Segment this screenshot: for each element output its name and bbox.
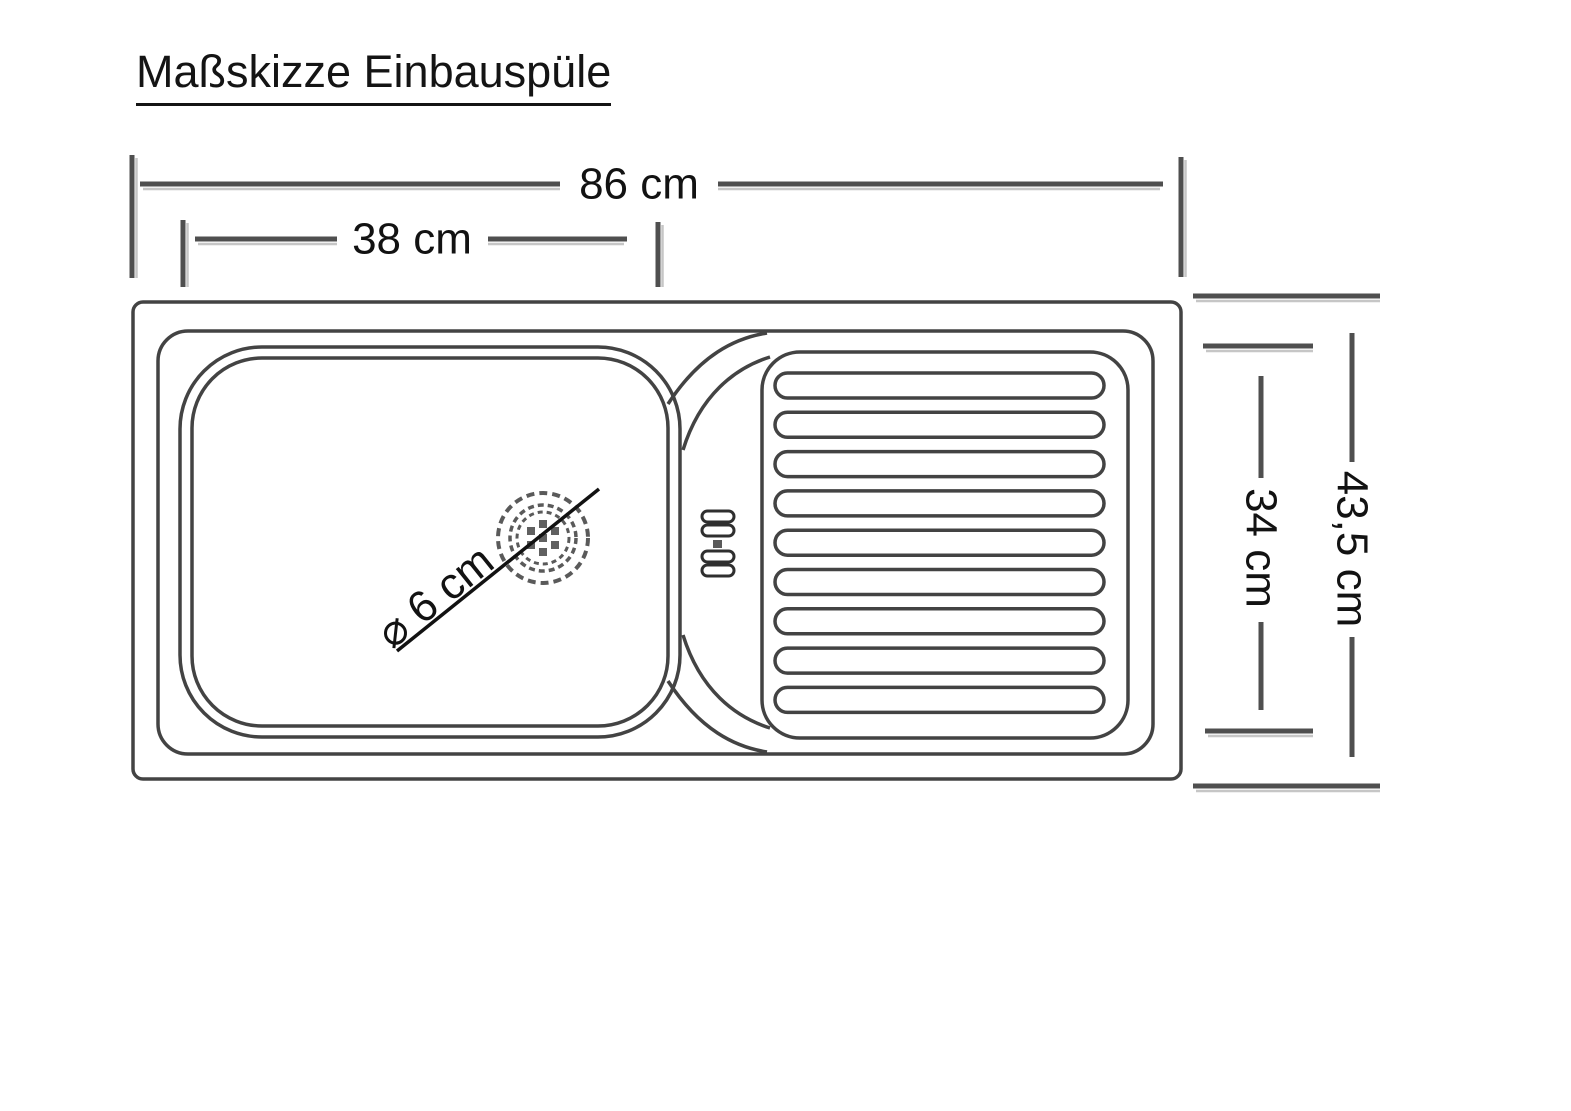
dim-86-label: 86 cm	[579, 160, 699, 209]
drainboard-rib	[775, 530, 1104, 555]
drain-diameter-label: ⌀ 6 cm	[368, 536, 503, 658]
dimension-basin-width: 38 cm	[183, 215, 663, 288]
basin-outer-outline	[180, 347, 680, 737]
measurement-sketch-page: Maßskizze Einbauspüle 86 cm 38 cm	[0, 0, 1571, 1111]
neck-curve-bottom-outer	[668, 681, 767, 752]
drainboard-rib	[775, 491, 1104, 516]
dimension-inner-depth: 34 cm	[1203, 346, 1313, 736]
tap-hole-center-dot	[713, 540, 722, 548]
drainboard-rib	[775, 452, 1104, 477]
drainboard-rib	[775, 570, 1104, 595]
drainboard-rib	[775, 687, 1104, 712]
basin-inner-outline	[192, 358, 668, 726]
sink-body: ⌀ 6 cm	[133, 302, 1181, 779]
neck-curve-top-outer	[668, 333, 767, 404]
tap-hole-slot	[702, 525, 734, 536]
drainboard-outline	[762, 352, 1128, 738]
tap-hole-marks	[702, 511, 734, 576]
dim-38-label: 38 cm	[352, 215, 472, 264]
drainboard-rib	[775, 373, 1104, 398]
dim-435-label: 43,5 cm	[1328, 471, 1377, 628]
sink-rim	[158, 331, 1153, 754]
drainboard-rib	[775, 412, 1104, 437]
sink-technical-drawing: 86 cm 38 cm 43,5 cm	[0, 0, 1571, 1111]
dimension-overall-depth: 43,5 cm	[1193, 296, 1380, 791]
drainboard-ribs	[775, 373, 1104, 712]
tap-hole-slot	[702, 511, 734, 522]
drainboard-rib	[775, 609, 1104, 634]
drainboard-rib	[775, 648, 1104, 673]
tap-hole-slot	[702, 551, 734, 562]
dim-34-label: 34 cm	[1237, 488, 1286, 608]
tap-hole-slot	[702, 565, 734, 576]
